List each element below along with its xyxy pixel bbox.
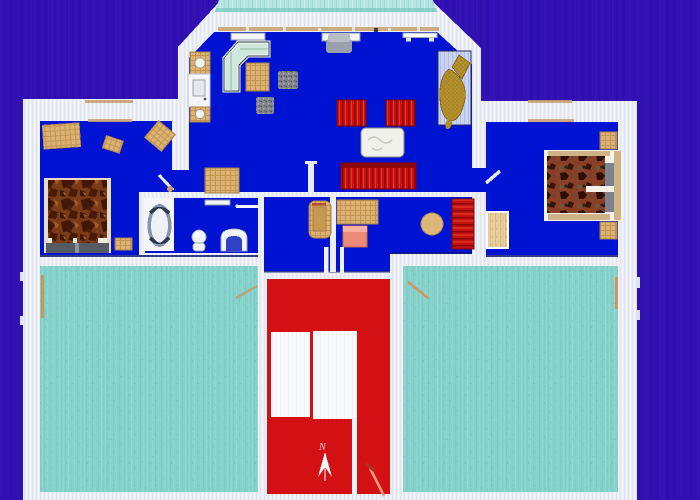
svg-text:N: N: [318, 442, 327, 453]
